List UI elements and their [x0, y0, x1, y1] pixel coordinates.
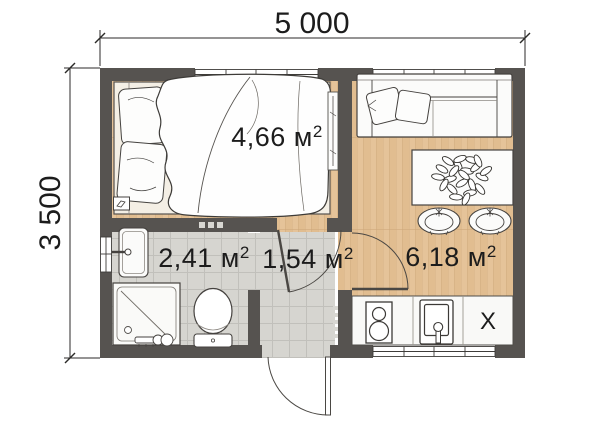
floor-plan: X 4,66 м2 2,41 м2 1,54 м2 6,18 м2 5 000 … [0, 0, 600, 424]
dining-table [412, 150, 513, 206]
wall-bedroom-living [338, 80, 352, 218]
floor-plan-svg: X 4,66 м2 2,41 м2 1,54 м2 6,18 м2 5 000 … [0, 0, 600, 424]
hookup-mark [199, 222, 205, 228]
bedside-switch [114, 197, 130, 210]
bathroom-door-threshold [248, 233, 260, 290]
wall-right [513, 68, 525, 358]
panel-mark [333, 313, 338, 317]
hall-area-label: 1,54 м2 [262, 244, 354, 274]
wall-bottom-middle [330, 345, 373, 358]
hookup-mark [208, 222, 214, 228]
panel-mark [333, 327, 338, 331]
wall-bath-hall-lower [248, 290, 260, 345]
sofa [357, 74, 512, 137]
wall-radiator [328, 92, 338, 170]
chair [418, 208, 460, 236]
kitchen-counter: X [352, 296, 513, 345]
wall-left-lower [100, 272, 112, 358]
sofa-pillow [395, 90, 431, 125]
bathroom-area-label: 2,41 м2 [158, 243, 250, 273]
panel-mark [333, 320, 338, 324]
bedroom-door-threshold [277, 218, 327, 232]
entrance-door-leaf [326, 357, 331, 415]
wall-hall-living-lower [338, 290, 352, 345]
panel-mark [333, 334, 338, 338]
wall-bottom-left [100, 345, 262, 358]
width-dimension-label: 5 000 [274, 7, 349, 40]
fridge-spot-x: X [480, 308, 496, 335]
stove [366, 302, 392, 343]
wall-bedroom-south-right [327, 218, 352, 232]
shower-drain [125, 327, 132, 334]
hookup-mark [217, 222, 223, 228]
toilet-tank [194, 334, 232, 347]
window-bathroom [101, 237, 112, 272]
wall-left-upper [100, 68, 112, 237]
height-dimension-label: 3 500 [34, 175, 67, 250]
bedroom-area-label: 4,66 м2 [231, 122, 323, 152]
shower [113, 283, 180, 347]
entrance-threshold [262, 345, 330, 358]
kitchen-sink [420, 300, 453, 344]
toilet [194, 289, 232, 348]
chair [469, 208, 511, 236]
living-area-label: 6,18 м2 [405, 242, 497, 272]
window-kitchen [373, 347, 495, 357]
panel-mark [333, 306, 338, 310]
pillow [116, 141, 167, 204]
